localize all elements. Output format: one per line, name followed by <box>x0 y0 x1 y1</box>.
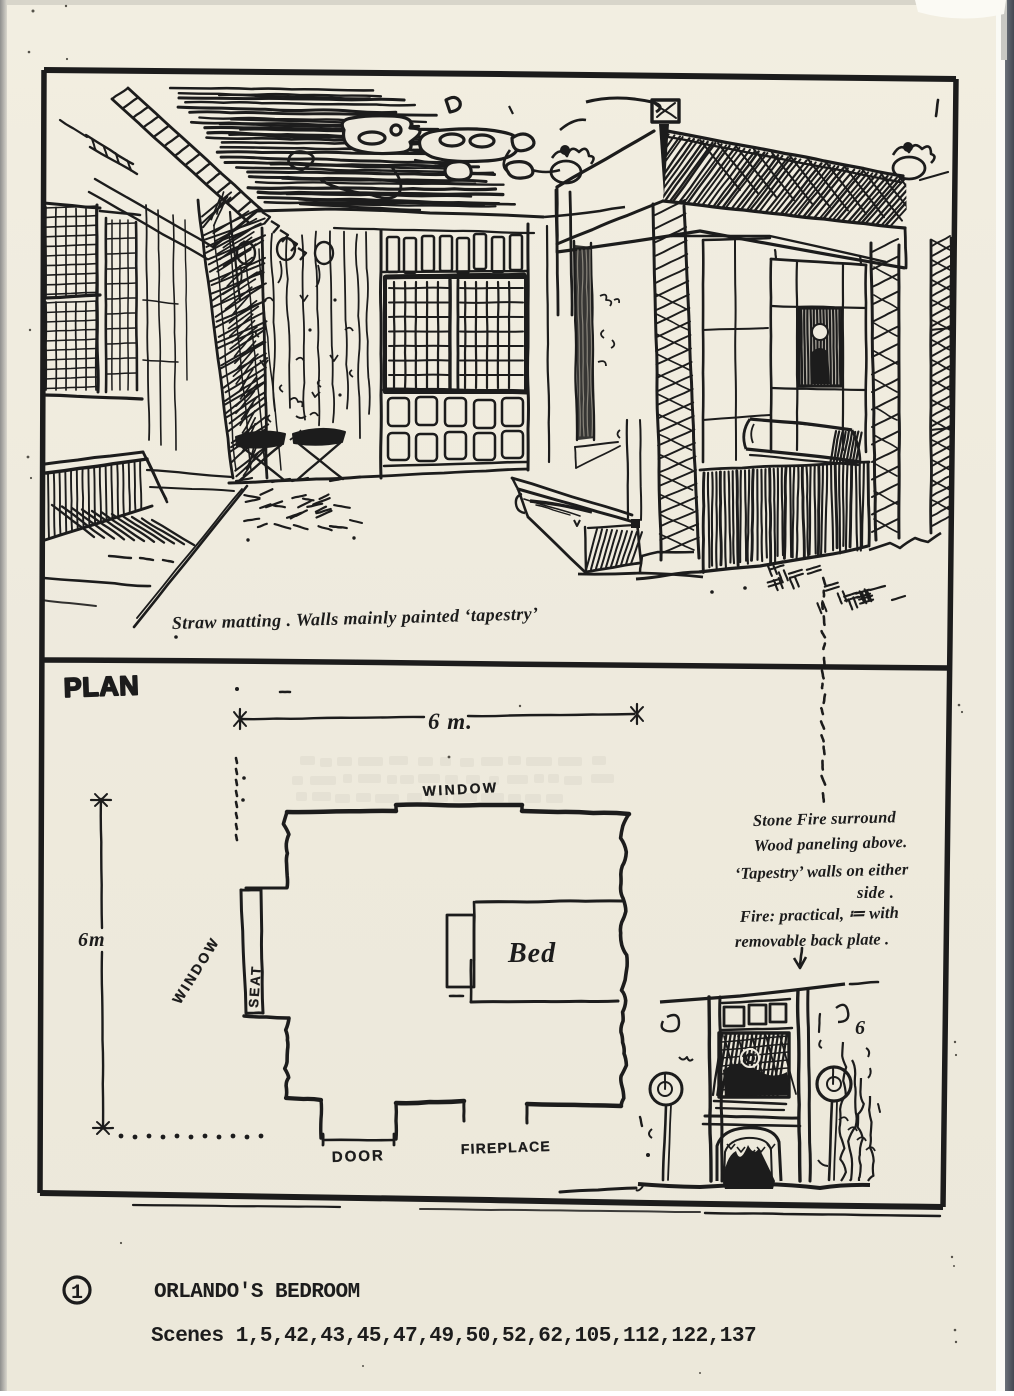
svg-text:6 m.: 6 m. <box>428 709 473 734</box>
svg-text:Scenes 1,5,42,43,45,47,49,50,5: Scenes 1,5,42,43,45,47,49,50,52,62,105,1… <box>151 1325 756 1348</box>
svg-text:Wood paneling above.: Wood paneling above. <box>754 832 908 855</box>
svg-text:Bed: Bed <box>507 938 556 969</box>
svg-text:side .: side . <box>856 883 894 902</box>
svg-text:DOOR: DOOR <box>332 1147 386 1166</box>
svg-text:1: 1 <box>71 1282 83 1305</box>
svg-text:6: 6 <box>855 1017 865 1039</box>
svg-text:SEAT: SEAT <box>246 964 264 1008</box>
svg-text:PLAN: PLAN <box>63 670 140 703</box>
svg-text:ORLANDO'S BEDROOM: ORLANDO'S BEDROOM <box>154 1281 360 1304</box>
svg-text:6m: 6m <box>78 929 106 951</box>
svg-text:Stone Fire surround: Stone Fire surround <box>753 807 897 830</box>
svg-text:removable back plate .: removable back plate . <box>735 929 890 951</box>
svg-text:FIREPLACE: FIREPLACE <box>461 1138 552 1157</box>
